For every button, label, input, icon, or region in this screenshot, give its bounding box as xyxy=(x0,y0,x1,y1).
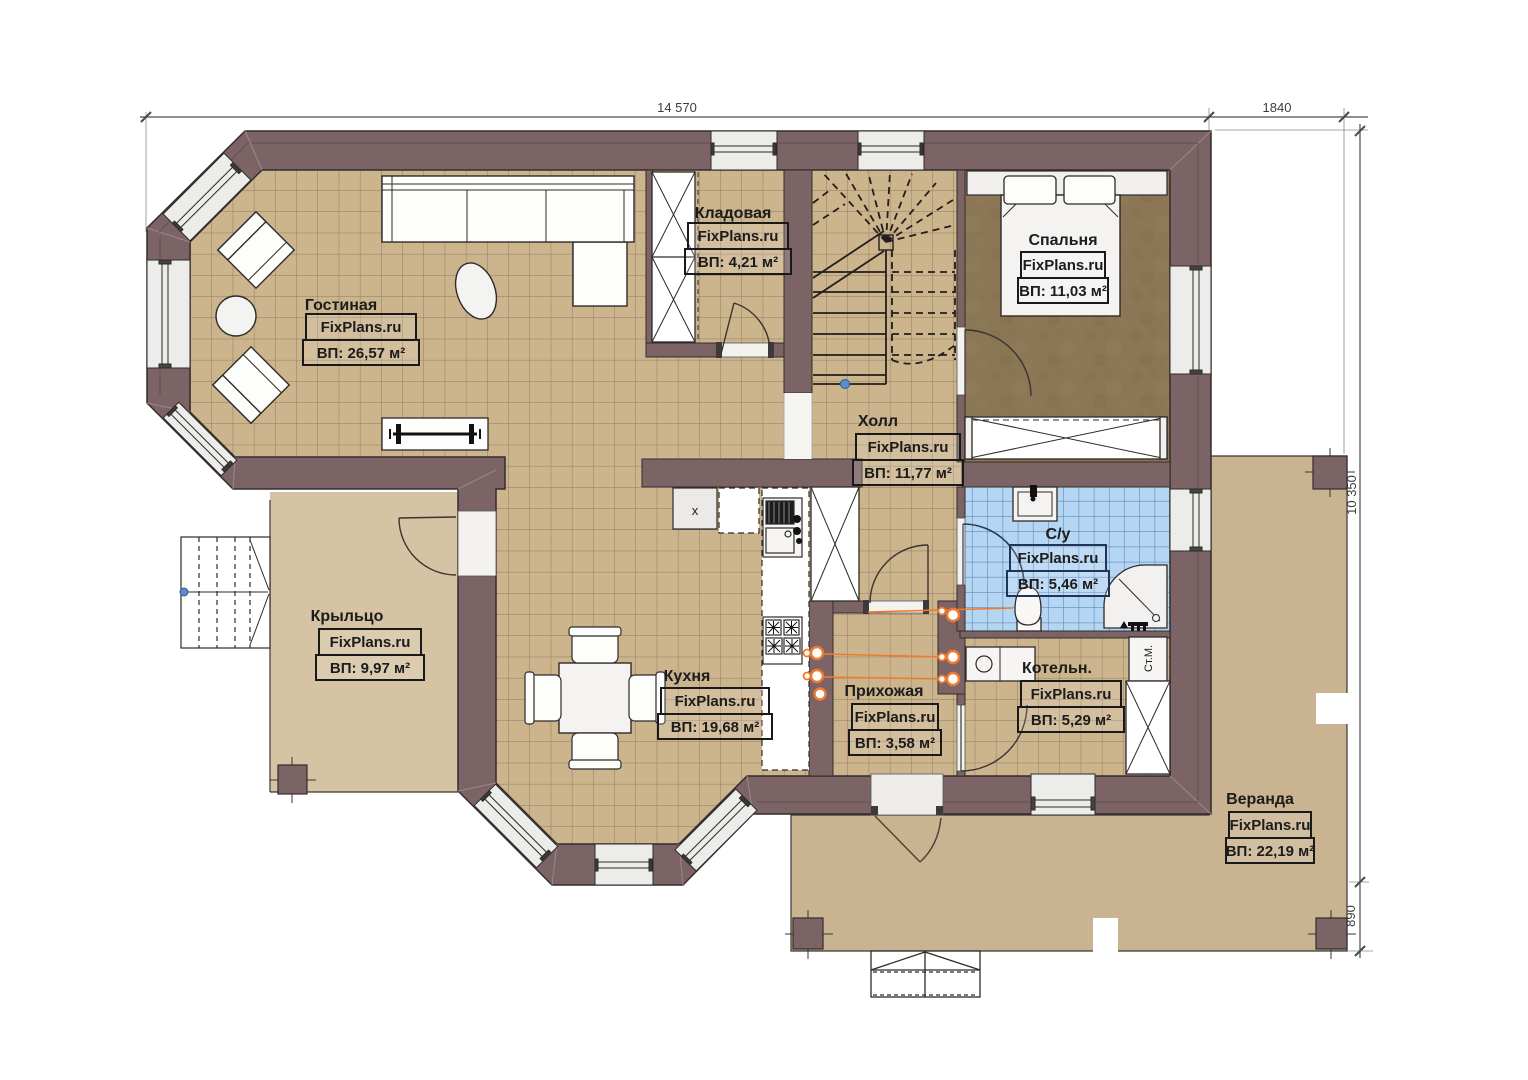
svg-text:Прихожая: Прихожая xyxy=(845,683,924,700)
svg-text:FixPlans.ru: FixPlans.ru xyxy=(1031,686,1112,703)
svg-text:x: x xyxy=(692,503,699,518)
svg-text:ВП: 5,46 м²: ВП: 5,46 м² xyxy=(1018,576,1098,593)
svg-text:ВП: 3,58 м²: ВП: 3,58 м² xyxy=(855,735,935,752)
svg-text:FixPlans.ru: FixPlans.ru xyxy=(1230,817,1311,834)
svg-text:ВП: 5,29 м²: ВП: 5,29 м² xyxy=(1031,712,1111,729)
svg-text:Гостиная: Гостиная xyxy=(305,297,377,314)
svg-text:Ст.М.: Ст.М. xyxy=(1143,645,1155,672)
svg-text:Крыльцо: Крыльцо xyxy=(311,608,384,625)
svg-text:Холл: Холл xyxy=(858,413,898,430)
svg-text:ВП: 19,68 м²: ВП: 19,68 м² xyxy=(671,719,760,736)
svg-text:14 570: 14 570 xyxy=(657,100,697,115)
svg-text:ВП: 9,97 м²: ВП: 9,97 м² xyxy=(330,660,410,677)
svg-text:Спальня: Спальня xyxy=(1028,232,1097,249)
svg-text:ВП: 22,19 м²: ВП: 22,19 м² xyxy=(1226,843,1315,860)
svg-text:FixPlans.ru: FixPlans.ru xyxy=(868,439,949,456)
svg-text:ВП: 11,77 м²: ВП: 11,77 м² xyxy=(864,465,952,482)
svg-text:FixPlans.ru: FixPlans.ru xyxy=(675,693,756,710)
svg-text:FixPlans.ru: FixPlans.ru xyxy=(855,709,936,726)
svg-text:С/у: С/у xyxy=(1046,526,1071,543)
svg-text:ВП: 26,57 м²: ВП: 26,57 м² xyxy=(317,345,406,362)
svg-text:Веранда: Веранда xyxy=(1226,791,1294,808)
svg-text:FixPlans.ru: FixPlans.ru xyxy=(321,319,402,336)
svg-text:FixPlans.ru: FixPlans.ru xyxy=(698,228,779,245)
svg-text:FixPlans.ru: FixPlans.ru xyxy=(1023,257,1104,274)
svg-text:FixPlans.ru: FixPlans.ru xyxy=(330,634,411,651)
svg-text:Кухня: Кухня xyxy=(664,668,711,685)
svg-text:Котельн.: Котельн. xyxy=(1022,660,1092,677)
svg-text:1840: 1840 xyxy=(1263,100,1292,115)
svg-text:Кладовая: Кладовая xyxy=(695,205,772,222)
svg-text:ВП: 11,03 м²: ВП: 11,03 м² xyxy=(1019,283,1107,300)
svg-text:ВП: 4,21 м²: ВП: 4,21 м² xyxy=(698,254,778,271)
svg-text:FixPlans.ru: FixPlans.ru xyxy=(1018,550,1099,567)
